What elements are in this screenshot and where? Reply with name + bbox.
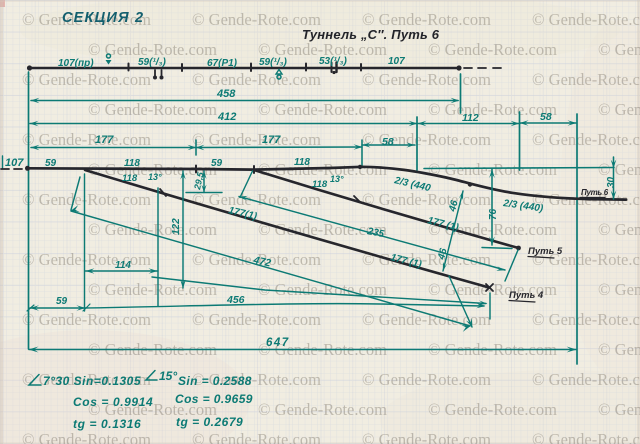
svg-text:© Gende-Rote.com: © Gende-Rote.com bbox=[362, 250, 491, 269]
svg-text:15°: 15° bbox=[159, 369, 177, 383]
svg-text:© Gende-Rote.com: © Gende-Rote.com bbox=[532, 430, 640, 444]
svg-text:118: 118 bbox=[122, 173, 138, 184]
svg-text:© Gende-Rote.com: © Gende-Rote.com bbox=[598, 340, 640, 359]
svg-text:13°: 13° bbox=[330, 174, 344, 184]
svg-text:59(¹/₃): 59(¹/₃) bbox=[259, 57, 287, 68]
svg-text:© Gende-Rote.com: © Gende-Rote.com bbox=[532, 130, 640, 149]
svg-text:114: 114 bbox=[115, 260, 131, 271]
svg-text:СЕКЦИЯ 2: СЕКЦИЯ 2 bbox=[62, 10, 144, 26]
svg-text:107(пр): 107(пр) bbox=[58, 58, 94, 69]
svg-text:Cos = 0.9659: Cos = 0.9659 bbox=[175, 392, 253, 406]
svg-text:177: 177 bbox=[262, 134, 281, 146]
svg-text:© Gende-Rote.com: © Gende-Rote.com bbox=[22, 310, 151, 329]
svg-text:© Gende-Rote.com: © Gende-Rote.com bbox=[532, 70, 640, 89]
svg-text:© Gende-Rote.com: © Gende-Rote.com bbox=[532, 310, 640, 329]
svg-text:112: 112 bbox=[462, 112, 479, 124]
svg-text:59: 59 bbox=[56, 296, 68, 307]
svg-text:tg = 0.1316: tg = 0.1316 bbox=[73, 417, 141, 431]
svg-text:© Gende-Rote.com: © Gende-Rote.com bbox=[258, 400, 387, 419]
svg-text:Путь 6: Путь 6 bbox=[581, 188, 609, 197]
svg-text:Sin = 0.2588: Sin = 0.2588 bbox=[178, 374, 252, 388]
svg-text:58: 58 bbox=[382, 136, 394, 148]
svg-text:53(¹/₃): 53(¹/₃) bbox=[319, 56, 347, 67]
svg-text:76: 76 bbox=[488, 208, 499, 220]
svg-text:© Gende-Rote.com: © Gende-Rote.com bbox=[258, 100, 387, 119]
svg-text:© Gende-Rote.com: © Gende-Rote.com bbox=[22, 190, 151, 209]
svg-text:118: 118 bbox=[294, 157, 310, 168]
svg-text:© Gende-Rote.com: © Gende-Rote.com bbox=[362, 70, 491, 89]
svg-text:13°: 13° bbox=[148, 172, 162, 182]
svg-text:© Gende-Rote.com: © Gende-Rote.com bbox=[88, 100, 217, 119]
svg-text:© Gende-Rote.com: © Gende-Rote.com bbox=[428, 100, 557, 119]
svg-text:177: 177 bbox=[95, 134, 114, 146]
svg-text:© Gende-Rote.com: © Gende-Rote.com bbox=[362, 430, 491, 444]
svg-text:122: 122 bbox=[171, 218, 182, 235]
svg-text:107: 107 bbox=[388, 56, 405, 67]
svg-text:© Gende-Rote.com: © Gende-Rote.com bbox=[532, 10, 640, 29]
svg-text:© Gende-Rote.com: © Gende-Rote.com bbox=[192, 130, 321, 149]
svg-text:© Gende-Rote.com: © Gende-Rote.com bbox=[428, 40, 557, 59]
svg-text:58: 58 bbox=[540, 111, 552, 123]
svg-text:© Gende-Rote.com: © Gende-Rote.com bbox=[192, 430, 321, 444]
svg-text:© Gende-Rote.com: © Gende-Rote.com bbox=[598, 100, 640, 119]
svg-text:© Gende-Rote.com: © Gende-Rote.com bbox=[22, 430, 151, 444]
svg-text:© Gende-Rote.com: © Gende-Rote.com bbox=[22, 70, 151, 89]
svg-text:59: 59 bbox=[45, 158, 57, 169]
svg-text:© Gende-Rote.com: © Gende-Rote.com bbox=[428, 400, 557, 419]
svg-text:© Gende-Rote.com: © Gende-Rote.com bbox=[532, 370, 640, 389]
svg-text:67(Р1): 67(Р1) bbox=[207, 58, 238, 69]
svg-text:© Gende-Rote.com: © Gende-Rote.com bbox=[362, 370, 491, 389]
svg-text:© Gende-Rote.com: © Gende-Rote.com bbox=[22, 250, 151, 269]
svg-text:59: 59 bbox=[211, 158, 223, 169]
svg-text:30: 30 bbox=[606, 176, 617, 188]
svg-text:7°30 Sin=0.1305: 7°30 Sin=0.1305 bbox=[43, 374, 141, 388]
svg-text:© Gende-Rote.com: © Gende-Rote.com bbox=[22, 130, 151, 149]
svg-text:59(¹/₃): 59(¹/₃) bbox=[138, 57, 166, 68]
svg-text:458: 458 bbox=[216, 88, 236, 100]
svg-text:Cos = 0.9914: Cos = 0.9914 bbox=[73, 395, 153, 409]
svg-text:© Gende-Rote.com: © Gende-Rote.com bbox=[598, 400, 640, 419]
svg-text:Туннель „С″. Путь 6: Туннель „С″. Путь 6 bbox=[302, 27, 440, 42]
svg-text:118: 118 bbox=[312, 179, 328, 190]
svg-text:© Gende-Rote.com: © Gende-Rote.com bbox=[598, 40, 640, 59]
svg-text:© Gende-Rote.com: © Gende-Rote.com bbox=[598, 280, 640, 299]
svg-text:© Gende-Rote.com: © Gende-Rote.com bbox=[598, 220, 640, 239]
svg-text:tg = 0.2679: tg = 0.2679 bbox=[176, 415, 243, 429]
svg-text:118: 118 bbox=[124, 158, 140, 169]
svg-text:Путь 4: Путь 4 bbox=[509, 290, 544, 301]
svg-text:647: 647 bbox=[266, 337, 290, 349]
svg-text:Путь 5: Путь 5 bbox=[528, 246, 563, 257]
svg-text:© Gende-Rote.com: © Gende-Rote.com bbox=[88, 220, 217, 239]
svg-text:456: 456 bbox=[226, 294, 245, 306]
svg-text:107: 107 bbox=[5, 157, 24, 169]
svg-text:© Gende-Rote.com: © Gende-Rote.com bbox=[192, 310, 321, 329]
svg-text:© Gende-Rote.com: © Gende-Rote.com bbox=[598, 160, 640, 179]
svg-text:© Gende-Rote.com: © Gende-Rote.com bbox=[192, 70, 321, 89]
svg-text:412: 412 bbox=[217, 111, 236, 123]
